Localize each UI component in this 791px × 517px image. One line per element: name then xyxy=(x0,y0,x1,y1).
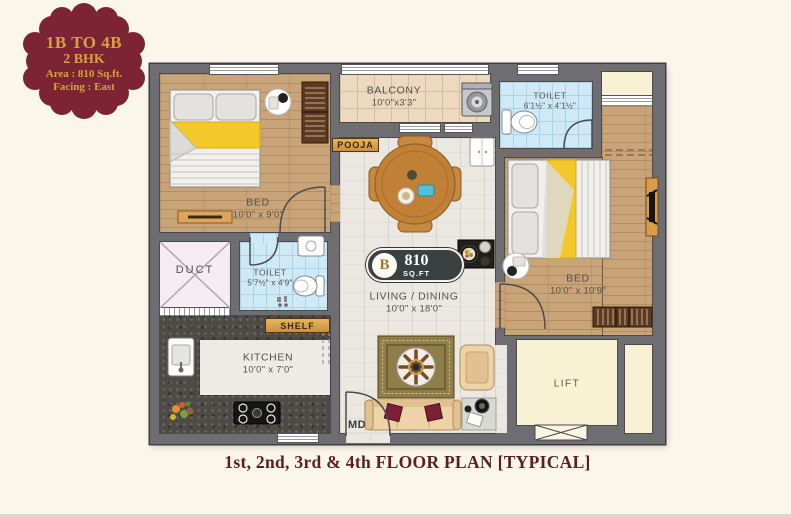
side-table xyxy=(462,398,496,430)
unit-letter: B xyxy=(379,257,389,274)
medallion-line1: 1B TO 4B xyxy=(46,33,122,53)
unit-area: 810 SQ.FT xyxy=(403,253,430,278)
pooja-label: POOJA xyxy=(337,140,374,150)
page: { "medallion": { "line1": "1B TO 4B", "l… xyxy=(0,0,791,517)
bed1-side-table xyxy=(265,89,291,115)
medallion-text: 1B TO 4B 2 BHK Area : 810 Sq.ft. Facing … xyxy=(18,2,150,122)
floor-plan: POOJA SHELF BED 10'0" x 9'0" BALCONY 10'… xyxy=(150,64,665,444)
shelf-plate: SHELF xyxy=(265,318,330,333)
toilet-top-label: TOILET 6'1½" x 4'1½" xyxy=(524,91,576,112)
balcony-label: BALCONY 10'0"x3'3" xyxy=(367,85,421,110)
lift-label: LIFT xyxy=(554,379,581,390)
unit-letter-circle: B xyxy=(372,253,397,278)
unit-area-unit: SQ.FT xyxy=(403,270,430,278)
washing-machine xyxy=(462,83,492,116)
kitchen-sink xyxy=(168,338,194,376)
main-door-label: MD xyxy=(348,419,366,431)
project-medallion: 1B TO 4B 2 BHK Area : 810 Sq.ft. Facing … xyxy=(18,2,150,120)
vegetables xyxy=(170,402,194,421)
bed2-wardrobe xyxy=(593,307,652,327)
stove xyxy=(234,402,280,424)
fridge xyxy=(470,138,494,166)
living-dining-label: LIVING / DINING 10'0" x 18'0" xyxy=(370,291,459,316)
duct-label: DUCT xyxy=(176,264,215,276)
floor-plan-caption: 1st, 2nd, 3rd & 4th FLOOR PLAN [TYPICAL] xyxy=(150,452,665,473)
unit-area-value: 810 xyxy=(405,253,429,269)
lift-door-marker xyxy=(535,425,587,440)
bedroom2-label: BED 10'0" x 10'9" xyxy=(550,273,606,298)
carpet-ceiling-fan xyxy=(378,336,454,398)
unit-area-badge: B 810 SQ.FT xyxy=(366,248,464,282)
shelf-label: SHELF xyxy=(280,321,315,331)
bed1-bench xyxy=(178,211,232,223)
bed2 xyxy=(508,160,610,258)
tv-panel xyxy=(646,178,658,236)
toilet-top-wc xyxy=(502,110,537,134)
medallion-line2: 2 BHK xyxy=(63,52,105,68)
armchair xyxy=(460,345,494,390)
medallion-line3: Area : 810 Sq.ft. xyxy=(46,68,122,81)
bed1-wardrobe xyxy=(302,82,328,143)
bed1 xyxy=(170,90,260,187)
kitchen-label: KITCHEN 10'0" x 7'0" xyxy=(243,352,293,377)
bedroom1-label: BED 10'0" x 9'0" xyxy=(233,197,283,222)
toilet-mid-label: TOILET 5'7½" x 4'9" xyxy=(247,268,292,289)
bed2-side-table xyxy=(503,253,529,279)
medallion-line4: Facing : East xyxy=(53,81,115,94)
pooja-plate: POOJA xyxy=(332,138,379,152)
dining-table xyxy=(369,136,461,232)
